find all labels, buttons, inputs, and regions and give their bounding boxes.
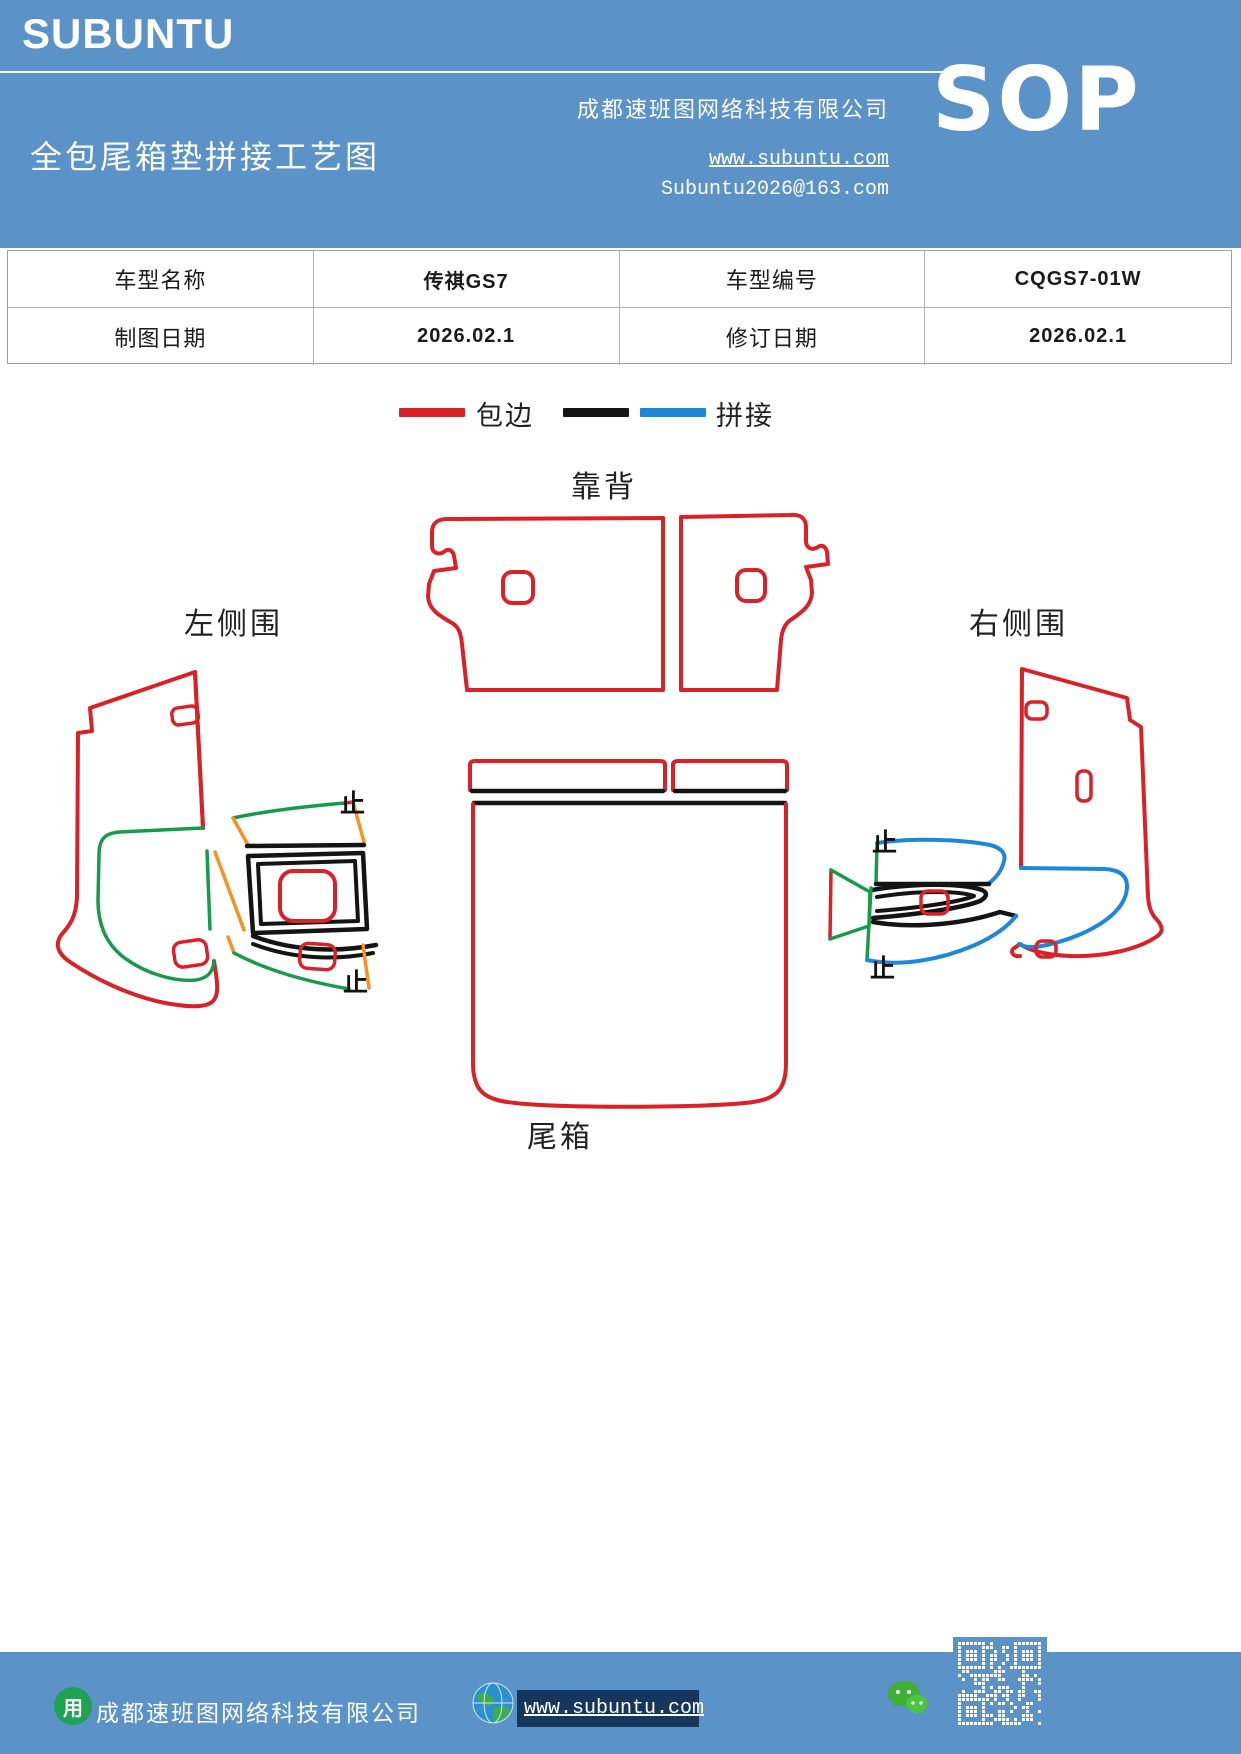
- left-assembly-box-red-hole: [280, 871, 335, 921]
- backrest-left-headrest-hole: [503, 572, 533, 603]
- left-assembly-top-green: [233, 803, 345, 818]
- stop-mark-right-bottom: 止: [870, 955, 895, 983]
- right-panel-red-outline: [1012, 669, 1162, 956]
- right-assembly-wedge-green: [830, 870, 870, 939]
- footer-company-name: 成都速班图网络科技有限公司: [96, 1694, 421, 1728]
- left-side-label: 左侧围: [184, 608, 283, 641]
- right-side-group: 右侧围 止 止: [830, 608, 1162, 983]
- left-panel-top-hole: [171, 705, 199, 725]
- footer-website-link[interactable]: www.subuntu.com: [524, 1697, 704, 1720]
- left-assembly-top-black-bottom: [247, 845, 364, 846]
- right-side-label: 右侧围: [969, 608, 1068, 641]
- backrest-left-outline: [428, 518, 663, 690]
- left-panel-bottom-hole: [172, 939, 208, 968]
- left-assembly-bottom-orange-left: [228, 937, 234, 953]
- left-assembly-top-orange-left: [233, 818, 248, 845]
- right-panel-top-hole: [1026, 702, 1047, 719]
- sop-document-page: SUBUNTU 成都速班图网络科技有限公司 SOP 全包尾箱垫拼接工艺图 www…: [0, 0, 1241, 1754]
- left-panel-red-outline-top: [195, 672, 203, 828]
- footer-website-bar[interactable]: www.subuntu.com: [517, 1690, 699, 1727]
- right-assembly-wedge-red: [830, 870, 831, 939]
- assembly-diagram: 靠背 左侧围 止: [0, 0, 1241, 1754]
- backrest-right-headrest-hole: [737, 570, 765, 601]
- left-panel-green-splice: [98, 828, 214, 980]
- trunk-flap-left-red: [470, 761, 665, 790]
- left-assembly-sliver-green: [207, 851, 210, 929]
- company-badge-icon: 用: [54, 1687, 92, 1725]
- left-side-group: 左侧围 止 止: [58, 608, 376, 1006]
- backrest-label: 靠背: [571, 471, 637, 504]
- qr-code: [953, 1637, 1047, 1731]
- stop-mark-left-top: 止: [340, 790, 365, 818]
- wechat-icon: [886, 1679, 930, 1719]
- right-panel-slot-hole: [1077, 771, 1091, 801]
- right-panel-blue-splice: [1019, 868, 1127, 947]
- stop-mark-right-top: 止: [872, 829, 897, 857]
- left-assembly-sliver-orange: [215, 852, 244, 930]
- trunk-body-red-outline: [473, 804, 786, 1107]
- backrest-group: 靠背: [428, 471, 828, 690]
- trunk-group: 尾箱: [470, 761, 787, 1154]
- globe-icon: [471, 1681, 515, 1725]
- badge-glyph: 用: [63, 1692, 83, 1721]
- trunk-flap-right-red: [673, 761, 787, 790]
- stop-mark-left-bottom: 止: [343, 969, 368, 997]
- trunk-label: 尾箱: [527, 1121, 593, 1154]
